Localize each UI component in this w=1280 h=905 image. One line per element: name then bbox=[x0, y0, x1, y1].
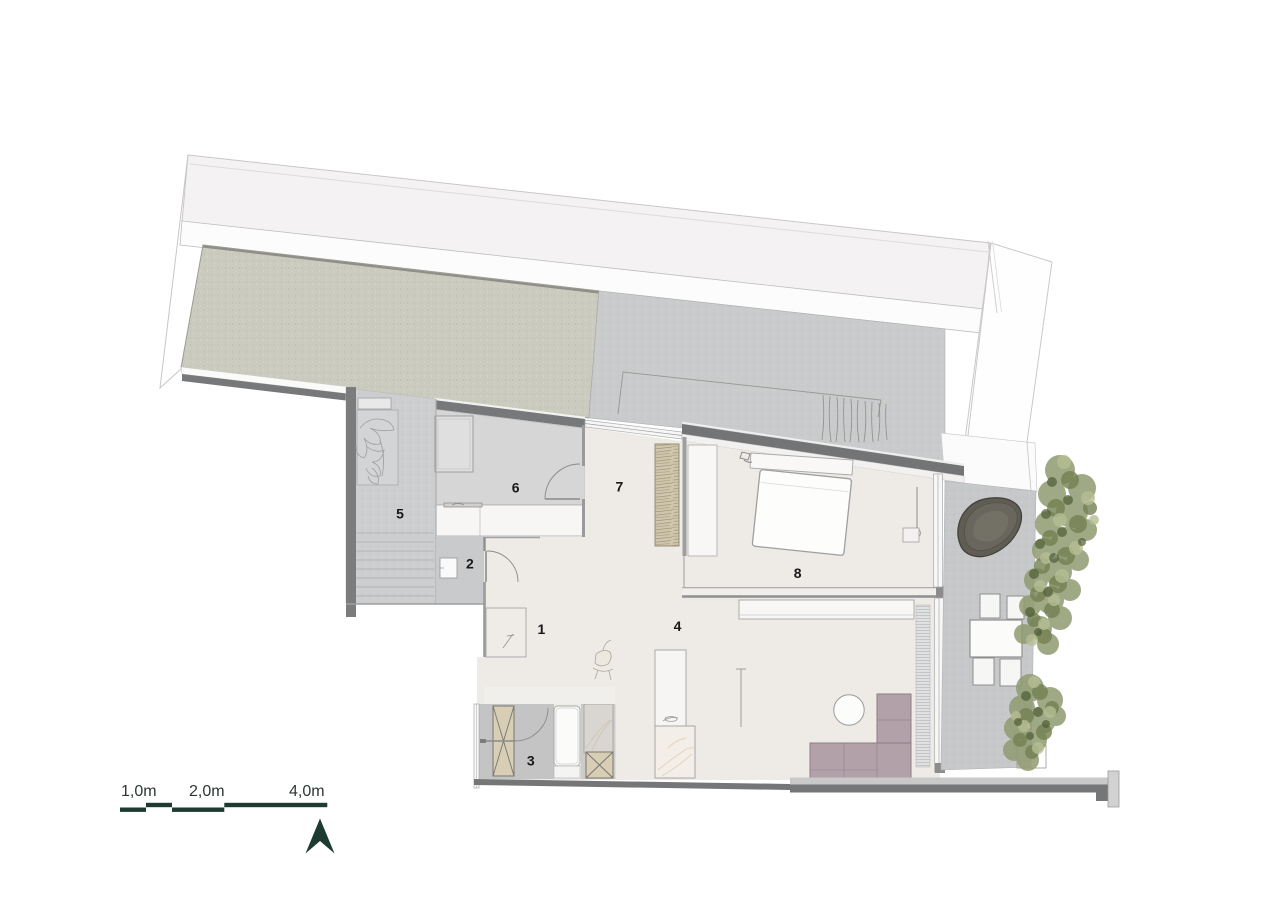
svg-text:1: 1 bbox=[538, 621, 546, 637]
svg-text:6: 6 bbox=[512, 480, 520, 496]
svg-text:3: 3 bbox=[527, 752, 535, 768]
svg-text:5: 5 bbox=[396, 506, 404, 522]
svg-text:2,0m: 2,0m bbox=[189, 783, 225, 800]
svg-text:1,0m: 1,0m bbox=[121, 783, 157, 800]
svg-text:2: 2 bbox=[466, 555, 474, 571]
svg-text:4: 4 bbox=[674, 618, 682, 634]
svg-text:4,0m: 4,0m bbox=[289, 783, 325, 800]
svg-text:7: 7 bbox=[616, 478, 624, 494]
svg-text:8: 8 bbox=[794, 565, 802, 581]
